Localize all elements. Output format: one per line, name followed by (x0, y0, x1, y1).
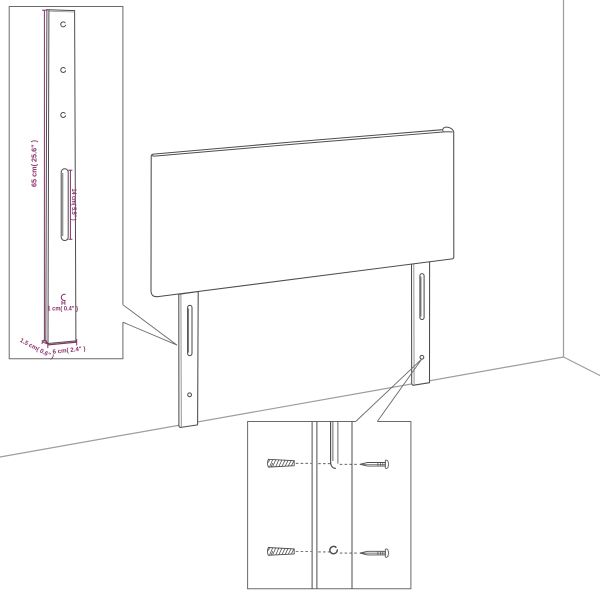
svg-text:1 cm( 0.4" ): 1 cm( 0.4" ) (47, 306, 78, 313)
svg-text:14 cm( 5.5" ): 14 cm( 5.5" ) (70, 189, 77, 221)
svg-text:65 cm( 25.6" ): 65 cm( 25.6" ) (31, 140, 38, 187)
